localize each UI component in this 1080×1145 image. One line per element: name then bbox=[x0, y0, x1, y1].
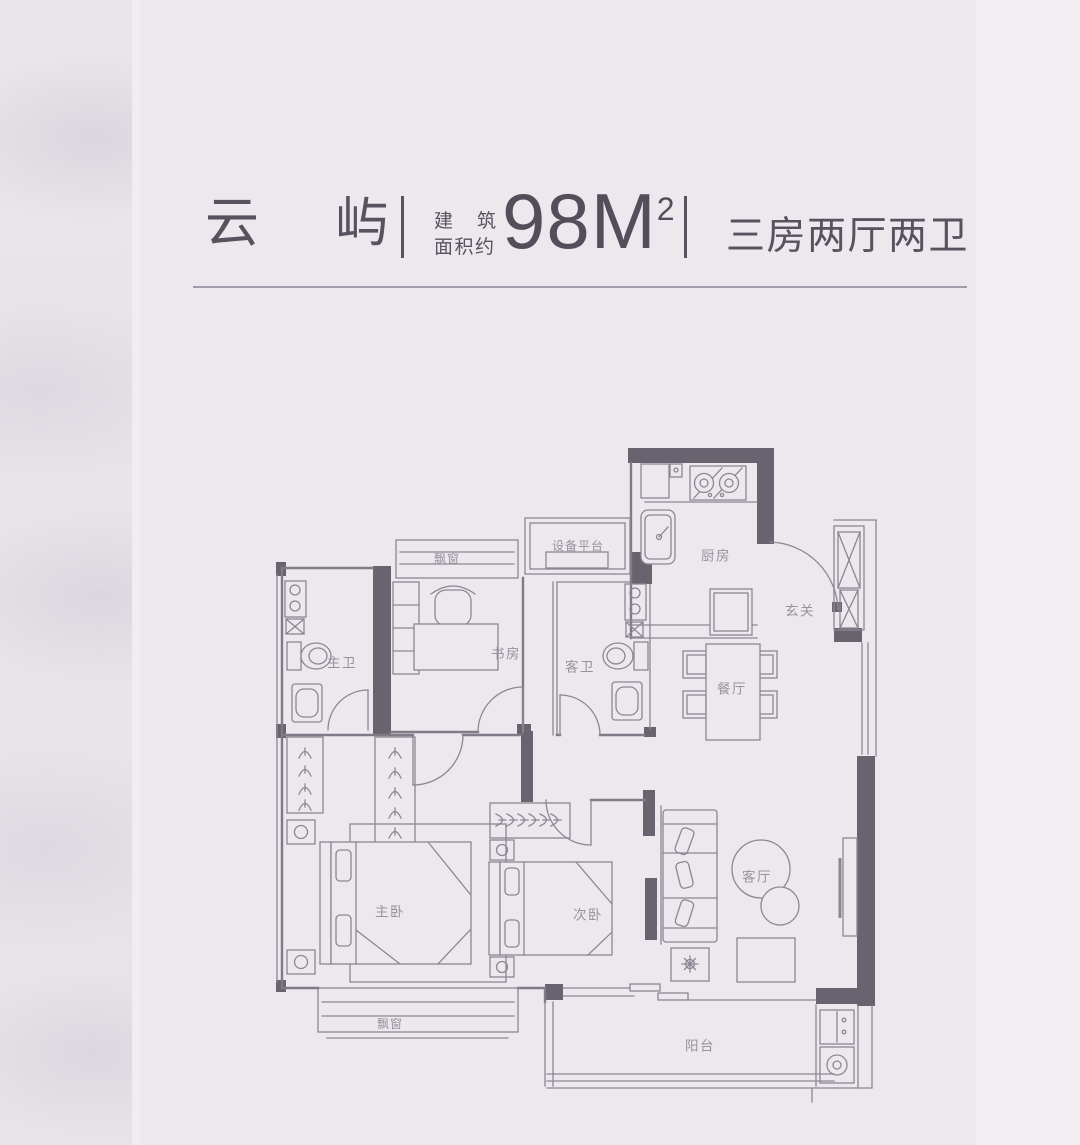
study-furniture bbox=[393, 582, 498, 674]
rug bbox=[737, 938, 795, 982]
headboard bbox=[489, 862, 500, 955]
tv-cabinet bbox=[843, 838, 857, 936]
room-label-dining: 餐厅 bbox=[717, 682, 747, 697]
balcony-laundry bbox=[820, 1010, 854, 1083]
kitchen-sink bbox=[641, 510, 675, 564]
floor-plan: 飘窗 设备平台 厨房 玄关 书房 客卫 主卫 餐厅 主卧 次卧 客厅 飘窗 阳台 bbox=[0, 0, 1080, 1145]
study-door-arc bbox=[478, 687, 523, 732]
fridge bbox=[710, 589, 752, 635]
master-bath-door-arc bbox=[328, 690, 368, 730]
room-label-study: 书房 bbox=[491, 647, 521, 662]
room-label-bay-window-bottom: 飘窗 bbox=[377, 1017, 403, 1031]
headboard bbox=[320, 842, 331, 964]
master-bedroom-furniture bbox=[287, 737, 506, 982]
coffee-table-small bbox=[761, 887, 799, 925]
living-room-furniture bbox=[661, 806, 857, 982]
room-label-entry: 玄关 bbox=[785, 603, 815, 619]
bed bbox=[331, 842, 471, 964]
master-bedroom-door-arc bbox=[413, 735, 463, 785]
washing-machine bbox=[820, 1047, 854, 1083]
kitchen-fixtures bbox=[641, 464, 752, 635]
poster-page: { "page": { "background": "#ece9ee", "le… bbox=[0, 0, 1080, 1145]
room-label-bay-window-top: 飘窗 bbox=[434, 552, 460, 566]
room-label-equipment-platform: 设备平台 bbox=[552, 538, 604, 553]
entry-door-arc bbox=[770, 542, 838, 610]
guest-bath-door-arc bbox=[560, 695, 600, 735]
room-label-balcony: 阳台 bbox=[685, 1039, 715, 1054]
room-label-kitchen: 厨房 bbox=[701, 549, 731, 564]
room-label-second-bedroom: 次卧 bbox=[573, 908, 603, 923]
second-bedroom-furniture bbox=[489, 803, 612, 977]
guest-bath bbox=[603, 584, 648, 720]
room-label-guest-bath: 客卫 bbox=[565, 659, 595, 675]
room-label-master-bath: 主卫 bbox=[327, 656, 357, 671]
walls-thin bbox=[277, 463, 876, 1102]
master-bath bbox=[285, 581, 331, 722]
room-label-master-bedroom: 主卧 bbox=[375, 905, 405, 920]
room-label-living-room: 客厅 bbox=[742, 869, 772, 885]
